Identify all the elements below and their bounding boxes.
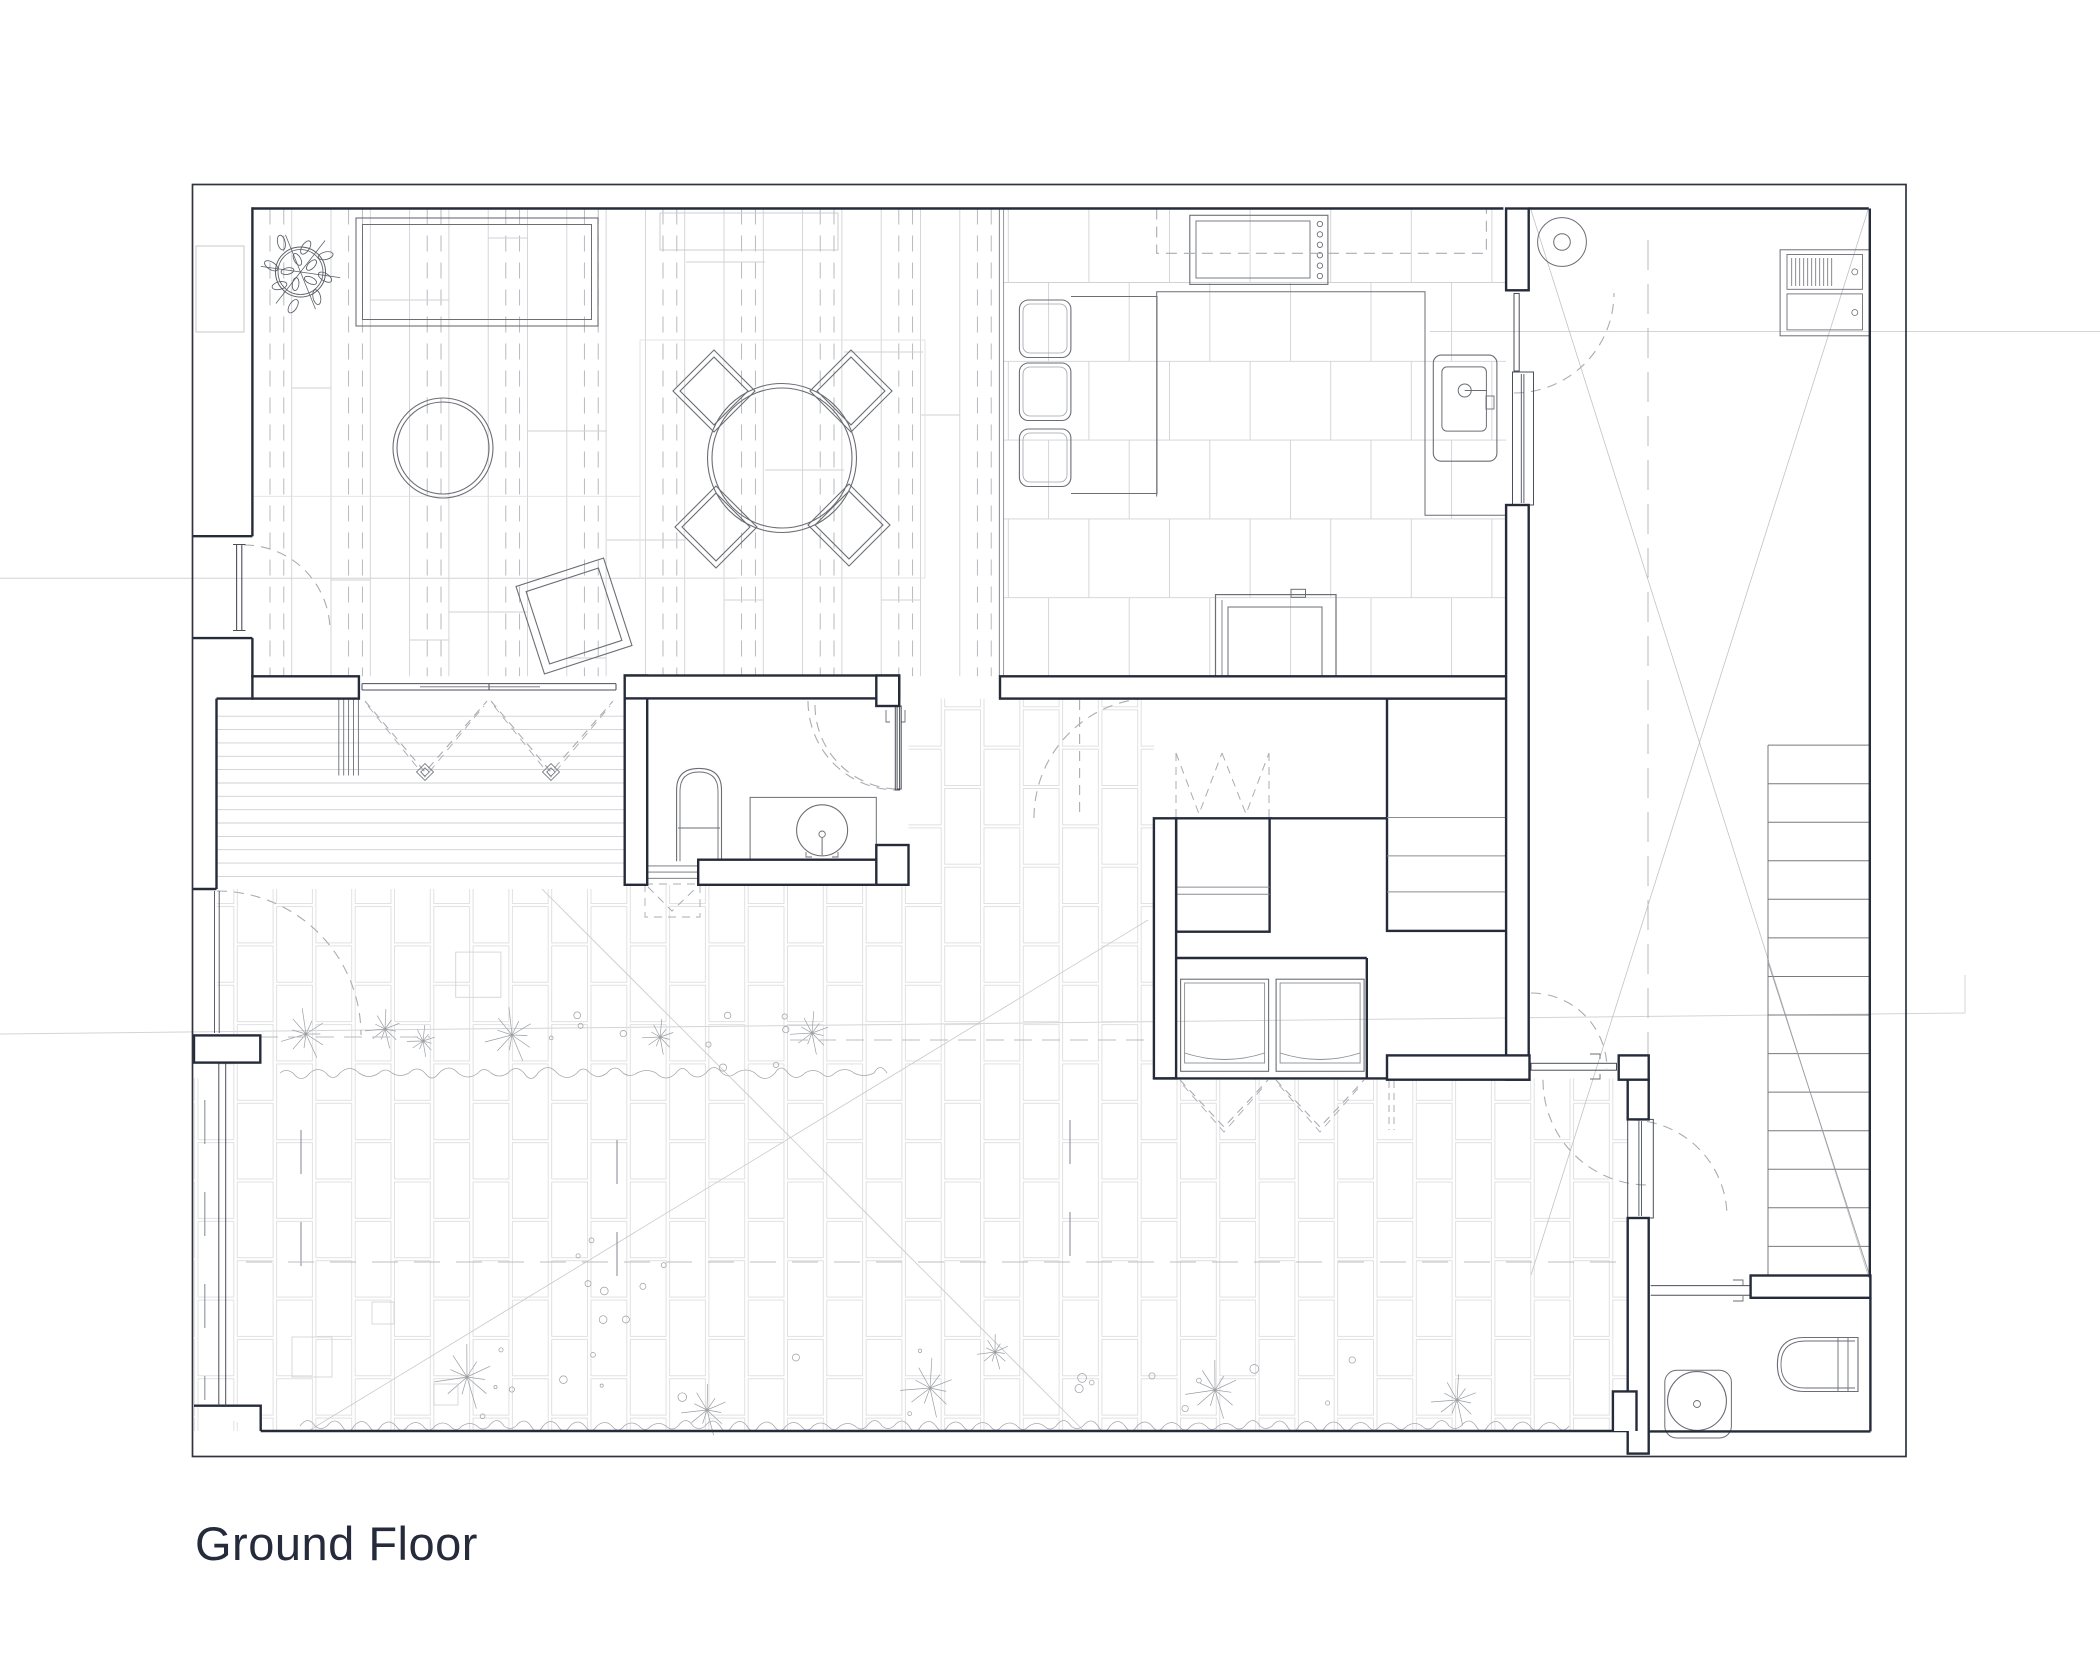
svg-text:Ground Floor: Ground Floor — [195, 1517, 478, 1570]
